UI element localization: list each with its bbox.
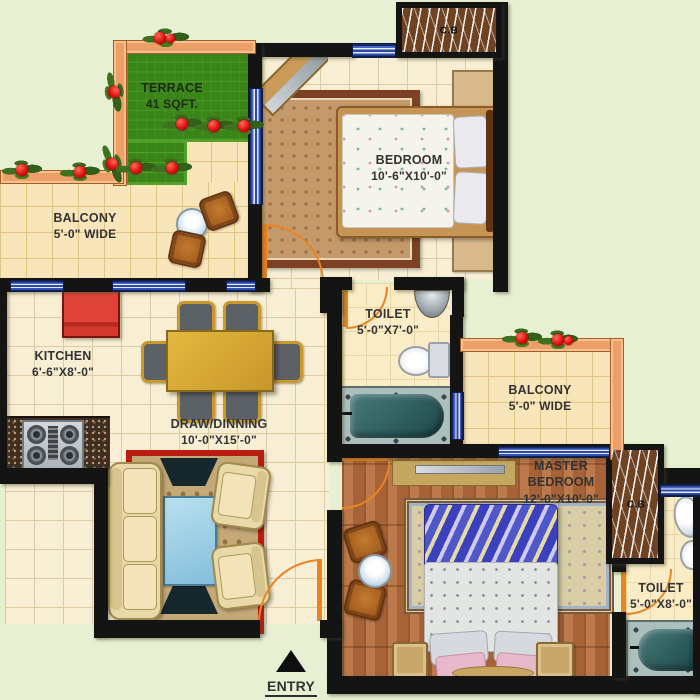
room-label-toilet2: TOILET 5'-0"X8'-0" [630, 580, 692, 613]
wall-segment [248, 43, 354, 57]
wall-segment [693, 486, 700, 694]
bathtub-platform [626, 620, 700, 682]
wall-segment [94, 468, 108, 636]
window [660, 484, 700, 497]
faucet-icon [630, 646, 639, 649]
wc-tank [428, 342, 450, 378]
room-dims: 10'-0"X15'-0" [181, 433, 257, 447]
cupboard-top-label: C.B [440, 26, 459, 37]
window [10, 280, 64, 292]
room-dims: 5'-0" WIDE [54, 227, 117, 241]
room-label-bedroom: BEDROOM 10'-6"X10'-0" [371, 152, 447, 185]
rug-motif [160, 586, 218, 614]
pillow [453, 171, 490, 225]
stove [22, 420, 84, 470]
window [226, 280, 256, 292]
window [352, 43, 396, 58]
entry-door [317, 559, 322, 621]
burner-icon [60, 425, 79, 444]
room-name: TOILET [638, 581, 683, 595]
wall-segment [0, 290, 7, 472]
bathtub-platform [336, 386, 456, 450]
room-name: BALCONY [53, 211, 116, 225]
pillow [453, 115, 490, 169]
sofa-back [110, 468, 122, 610]
sofa-cushion [123, 516, 157, 562]
sofa-three-seater [108, 462, 162, 620]
wall-segment [0, 468, 108, 484]
burner-icon [27, 425, 46, 444]
bathtub [350, 394, 444, 438]
wall-segment [327, 510, 342, 678]
entry-arrow-icon [276, 650, 306, 672]
wall-segment [342, 277, 352, 290]
balcony-left-floor-notch [185, 135, 252, 182]
dining-table [166, 330, 274, 392]
room-name: BEDROOM [376, 153, 443, 167]
faucet-icon [342, 412, 352, 415]
wall-segment [327, 278, 342, 462]
room-dims: 12'-0"X10'-0" [523, 492, 599, 506]
bathtub [638, 629, 696, 671]
coffee-table [163, 496, 217, 586]
room-label-terrace: TERRACE 41 SQFT. [141, 80, 203, 113]
burner-icon [60, 446, 79, 465]
balcony-left-railing [0, 170, 124, 184]
bedroom-door [262, 224, 267, 281]
room-dims: 5'-0"X8'-0" [630, 597, 692, 611]
stove-grill [48, 426, 58, 460]
room-name: BALCONY [508, 383, 571, 397]
window [451, 392, 464, 440]
entry-text: ENTRY [265, 678, 317, 697]
terrace-railing-top [113, 40, 256, 54]
balcony-chair [167, 229, 207, 269]
entry-label: ENTRY [265, 677, 317, 695]
room-dims: 10'-6"X10'-0" [371, 169, 447, 183]
room-dims: 5'-0" WIDE [509, 399, 572, 413]
room-name: TOILET [365, 307, 410, 321]
rug-motif [160, 458, 218, 486]
sofa-cushion [123, 564, 157, 610]
window [498, 446, 610, 458]
room-label-draw-dining: DRAW/DINNING 10'-0"X15'-0" [171, 416, 268, 449]
room-dims: 5'-0"X7'-0" [357, 323, 419, 337]
room-label-balcony-right: BALCONY 5'-0" WIDE [508, 382, 571, 415]
terrace-railing-left [113, 40, 127, 186]
floor-plan: C.B C.B [0, 0, 700, 700]
tv-shelf [415, 465, 505, 474]
cupboard-master-label: C.B [627, 500, 646, 511]
wall-segment [452, 277, 464, 317]
nightstand [452, 70, 496, 110]
wall-segment [327, 676, 700, 694]
wall-segment [320, 620, 342, 638]
dining-chair [269, 341, 303, 383]
nightstand [452, 234, 496, 272]
bedside-stool [392, 642, 428, 678]
room-label-balcony-left: BALCONY 5'-0" WIDE [53, 210, 116, 243]
balcony-right-railing-top [460, 338, 624, 352]
toilet1-door [343, 285, 348, 327]
room-name: DRAW/DINNING [171, 417, 268, 431]
refrigerator [62, 290, 120, 338]
room-name: KITCHEN [35, 349, 92, 363]
room-label-kitchen: KITCHEN 6'-6"X8'-0" [32, 348, 94, 381]
sofa-cushion [123, 468, 157, 514]
room-label-master-bedroom: MASTER BEDROOM 12'-0"X10'-0" [513, 458, 609, 507]
toilet2-door [621, 569, 626, 613]
wall-segment [612, 612, 626, 678]
bedside-stool [536, 642, 574, 678]
side-table [358, 554, 392, 588]
blanket [424, 504, 558, 568]
room-label-toilet1: TOILET 5'-0"X7'-0" [357, 306, 419, 339]
room-dims: 41 SQFT. [146, 97, 198, 111]
window [249, 88, 263, 205]
wall-segment [94, 620, 260, 638]
sofa-single [210, 461, 272, 532]
terrace-grass [125, 140, 187, 185]
sofa-cushion [217, 553, 256, 601]
room-dims: 6'-6"X8'-0" [32, 365, 94, 379]
room-name: TERRACE [141, 81, 203, 95]
balcony-right-railing-side [610, 338, 624, 460]
burner-icon [27, 446, 46, 465]
room-name: MASTER BEDROOM [528, 459, 595, 489]
console-table [392, 460, 516, 486]
window [112, 280, 186, 292]
